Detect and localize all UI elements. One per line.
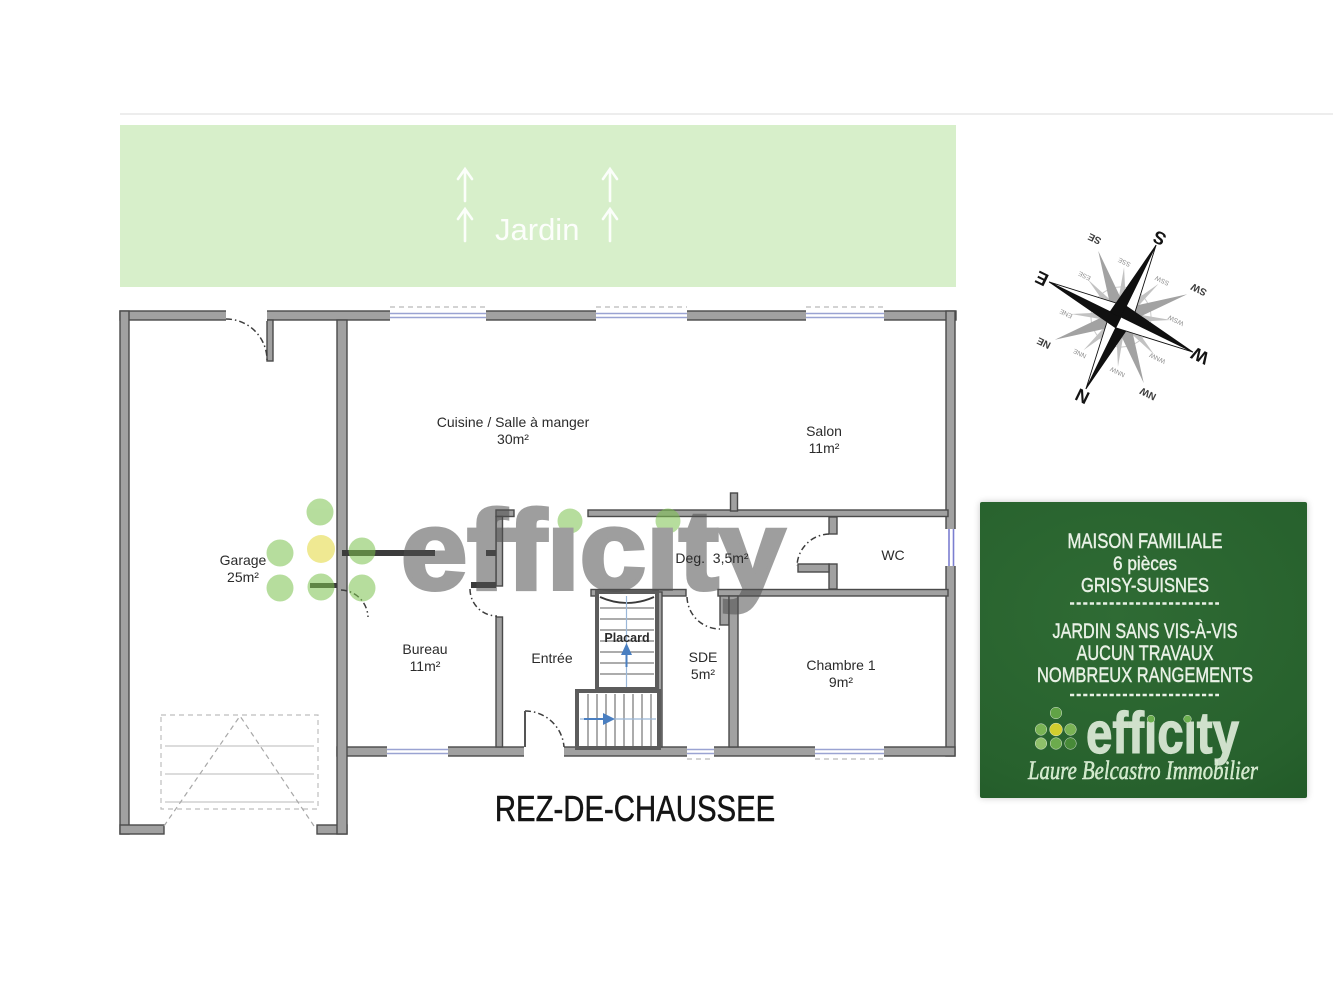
svg-text:6 pièces: 6 pièces bbox=[1113, 554, 1177, 575]
svg-text:GRISY-SUISNES: GRISY-SUISNES bbox=[1081, 575, 1209, 597]
svg-text:AUCUN TRAVAUX: AUCUN TRAVAUX bbox=[1077, 642, 1214, 665]
svg-text:JARDIN SANS VIS-À-VIS: JARDIN SANS VIS-À-VIS bbox=[1053, 620, 1238, 643]
svg-text:Laure Belcastro Immobilier: Laure Belcastro Immobilier bbox=[1027, 756, 1259, 785]
svg-text:MAISON FAMILIALE: MAISON FAMILIALE bbox=[1068, 530, 1223, 553]
svg-text:NOMBREUX RANGEMENTS: NOMBREUX RANGEMENTS bbox=[1037, 664, 1253, 687]
